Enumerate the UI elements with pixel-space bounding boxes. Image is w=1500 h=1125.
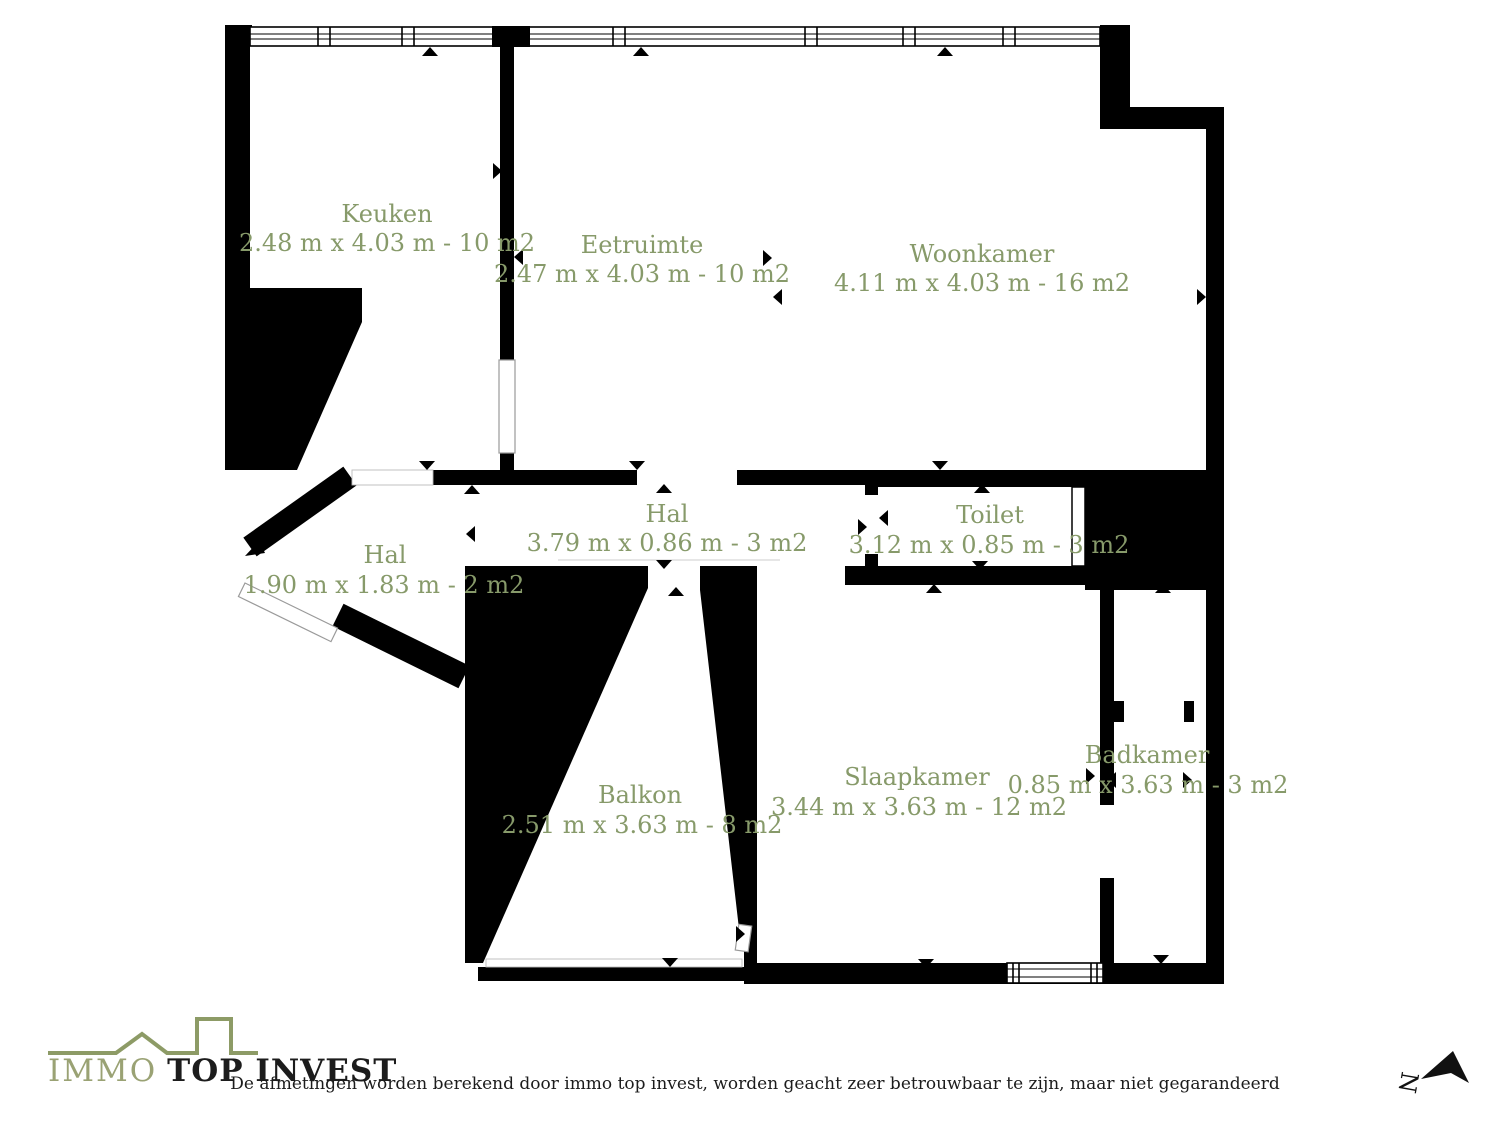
direction-marker-icon <box>629 461 645 470</box>
room-dims: 1.90 m x 1.83 m - 2 m2 <box>244 571 525 599</box>
room-dims: 4.11 m x 4.03 m - 16 m2 <box>834 269 1130 297</box>
compass-north-letter: N <box>1393 1070 1424 1096</box>
balkon-left-wall <box>465 566 648 963</box>
room-name: Keuken <box>341 200 432 228</box>
logo-roofline-icon <box>48 1019 258 1053</box>
top-window-band <box>250 26 1100 47</box>
room-label-hal-center: Hal 3.79 m x 0.86 m - 3 m2 <box>527 500 808 557</box>
direction-marker-icon <box>773 289 782 305</box>
keuken-hal-threshold <box>352 470 433 485</box>
room-name: Hal <box>364 541 407 569</box>
direction-marker-icon <box>937 47 953 56</box>
bottom-window <box>1007 963 1103 983</box>
room-label-woonkamer: Woonkamer 4.11 m x 4.03 m - 16 m2 <box>834 240 1130 297</box>
direction-marker-icon <box>633 47 649 56</box>
floorplan-drawing: Keuken 2.48 m x 4.03 m - 10 m2 Eetruimte… <box>0 0 1500 1125</box>
room-dims: 2.48 m x 4.03 m - 10 m2 <box>239 229 535 257</box>
room-dims: 3.12 m x 0.85 m - 3 m2 <box>849 531 1130 559</box>
doors <box>238 360 1085 967</box>
room-name: Balkon <box>598 781 682 809</box>
room-dims: 3.79 m x 0.86 m - 3 m2 <box>527 529 808 557</box>
compass: N <box>1393 1051 1469 1095</box>
logo-word-immo: IMMO <box>48 1053 157 1089</box>
direction-marker-icon <box>422 47 438 56</box>
room-dims: 2.47 m x 4.03 m - 10 m2 <box>494 260 790 288</box>
keuken-wedge-wall <box>225 288 362 470</box>
balkon-right-wall <box>700 566 757 984</box>
room-name: Toilet <box>956 501 1024 529</box>
direction-marker-icon <box>926 584 942 593</box>
room-name: Eetruimte <box>581 231 704 259</box>
room-label-eetruimte: Eetruimte 2.47 m x 4.03 m - 10 m2 <box>494 231 790 288</box>
room-name: Badkamer <box>1085 741 1210 769</box>
room-name: Woonkamer <box>910 240 1055 268</box>
direction-marker-icon <box>668 587 684 596</box>
room-dims: 0.85 m x 3.63 m - 3 m2 <box>1008 771 1289 799</box>
floorplan-page: Keuken 2.48 m x 4.03 m - 10 m2 Eetruimte… <box>0 0 1500 1125</box>
direction-marker-icon <box>1197 289 1206 305</box>
direction-marker-icon <box>466 526 475 542</box>
direction-marker-icon <box>656 484 672 493</box>
direction-marker-icon <box>464 485 480 494</box>
direction-marker-icon <box>879 510 888 526</box>
north-arrow-icon <box>1421 1051 1469 1083</box>
direction-marker-icon <box>932 461 948 470</box>
room-dims: 2.51 m x 3.63 m - 8 m2 <box>502 811 783 839</box>
room-label-badkamer: Badkamer 0.85 m x 3.63 m - 3 m2 <box>1008 741 1289 799</box>
room-name: Hal <box>646 500 689 528</box>
window-pier <box>492 26 530 47</box>
room-name: Slaapkamer <box>844 763 990 791</box>
disclaimer-text: De afmetingen worden berekend door immo … <box>230 1074 1280 1094</box>
direction-marker-icon <box>419 461 435 470</box>
room-label-keuken: Keuken 2.48 m x 4.03 m - 10 m2 <box>239 200 535 257</box>
keuken-eetruimte-opening <box>499 360 515 453</box>
direction-marker-icon <box>1153 955 1169 964</box>
balkon-threshold <box>486 959 742 967</box>
direction-marker-icon <box>656 560 672 569</box>
